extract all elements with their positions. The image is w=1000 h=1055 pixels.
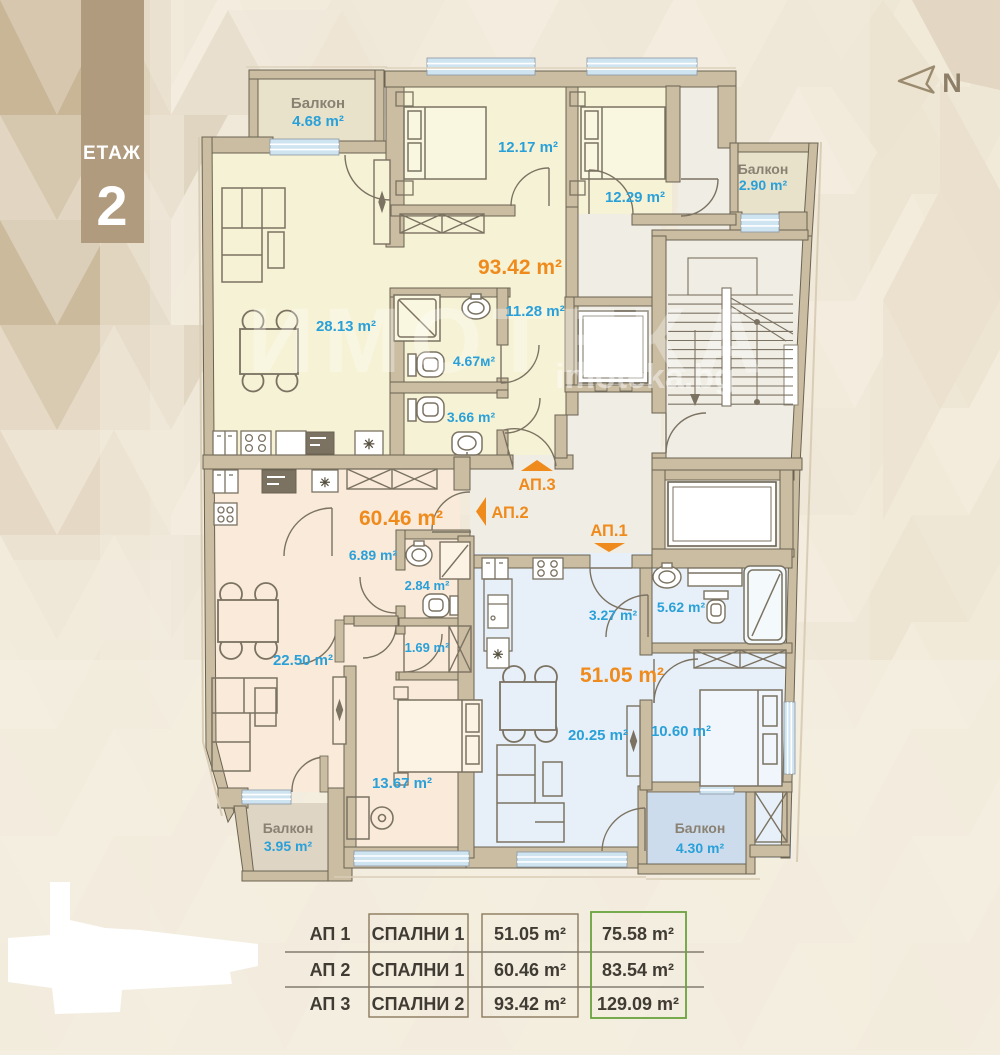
svg-text:1.69 m²: 1.69 m² bbox=[405, 640, 450, 655]
svg-text:12.17 m²: 12.17 m² bbox=[498, 139, 558, 156]
svg-text:3.95 m²: 3.95 m² bbox=[264, 838, 313, 854]
svg-text:20.25 m²: 20.25 m² bbox=[568, 727, 628, 744]
svg-text:51.05 m²: 51.05 m² bbox=[580, 664, 664, 687]
svg-text:60.46 m²: 60.46 m² bbox=[359, 507, 443, 530]
svg-text:5.62 m²: 5.62 m² bbox=[657, 599, 706, 615]
svg-text:СПАЛНИ 1: СПАЛНИ 1 bbox=[372, 924, 465, 944]
svg-text:129.09 m²: 129.09 m² bbox=[597, 994, 679, 1014]
svg-text:Балкон: Балкон bbox=[291, 95, 345, 112]
svg-text:Балкон: Балкон bbox=[738, 161, 789, 177]
svg-text:28.13 m²: 28.13 m² bbox=[316, 318, 376, 335]
svg-text:6.89 m²: 6.89 m² bbox=[349, 547, 398, 563]
svg-text:2: 2 bbox=[96, 174, 127, 237]
svg-text:ЕТАЖ: ЕТАЖ bbox=[83, 143, 141, 164]
svg-text:✳: ✳ bbox=[363, 436, 375, 452]
svg-text:АП 3: АП 3 bbox=[310, 994, 351, 1014]
svg-text:СПАЛНИ 1: СПАЛНИ 1 bbox=[372, 960, 465, 980]
svg-text:Балкон: Балкон bbox=[675, 820, 726, 836]
svg-text:АП.3: АП.3 bbox=[518, 476, 555, 494]
svg-text:93.42 m²: 93.42 m² bbox=[478, 256, 562, 279]
svg-text:75.58 m²: 75.58 m² bbox=[602, 924, 674, 944]
svg-text:✳: ✳ bbox=[320, 475, 331, 490]
svg-text:93.42 m²: 93.42 m² bbox=[494, 994, 566, 1014]
svg-text:СПАЛНИ 2: СПАЛНИ 2 bbox=[372, 994, 465, 1014]
svg-text:4.30 m²: 4.30 m² bbox=[676, 840, 725, 856]
svg-text:Балкон: Балкон bbox=[263, 820, 314, 836]
svg-text:51.05 m²: 51.05 m² bbox=[494, 924, 566, 944]
svg-text:3.27 m²: 3.27 m² bbox=[589, 607, 638, 623]
svg-text:N: N bbox=[942, 68, 962, 98]
svg-text:4.67м²: 4.67м² bbox=[453, 353, 496, 369]
svg-text:АП 1: АП 1 bbox=[310, 924, 351, 944]
svg-text:imoteka.bg: imoteka.bg bbox=[555, 358, 734, 396]
svg-text:АП.2: АП.2 bbox=[491, 504, 528, 522]
svg-text:22.50 m²: 22.50 m² bbox=[273, 652, 333, 669]
svg-text:2.84 m²: 2.84 m² bbox=[405, 578, 450, 593]
svg-text:83.54 m²: 83.54 m² bbox=[602, 960, 674, 980]
svg-text:АП 2: АП 2 bbox=[310, 960, 351, 980]
svg-text:2.90 m²: 2.90 m² bbox=[739, 177, 788, 193]
svg-text:3.66 m²: 3.66 m² bbox=[447, 409, 496, 425]
svg-text:4.68 m²: 4.68 m² bbox=[292, 113, 344, 130]
svg-text:13.67 m²: 13.67 m² bbox=[372, 775, 432, 792]
svg-text:11.28 m²: 11.28 m² bbox=[505, 303, 564, 320]
svg-text:12.29 m²: 12.29 m² bbox=[605, 189, 665, 206]
svg-text:АП.1: АП.1 bbox=[590, 522, 627, 540]
svg-text:✳: ✳ bbox=[493, 647, 504, 662]
svg-text:60.46 m²: 60.46 m² bbox=[494, 960, 566, 980]
svg-text:10.60 m²: 10.60 m² bbox=[651, 723, 711, 740]
